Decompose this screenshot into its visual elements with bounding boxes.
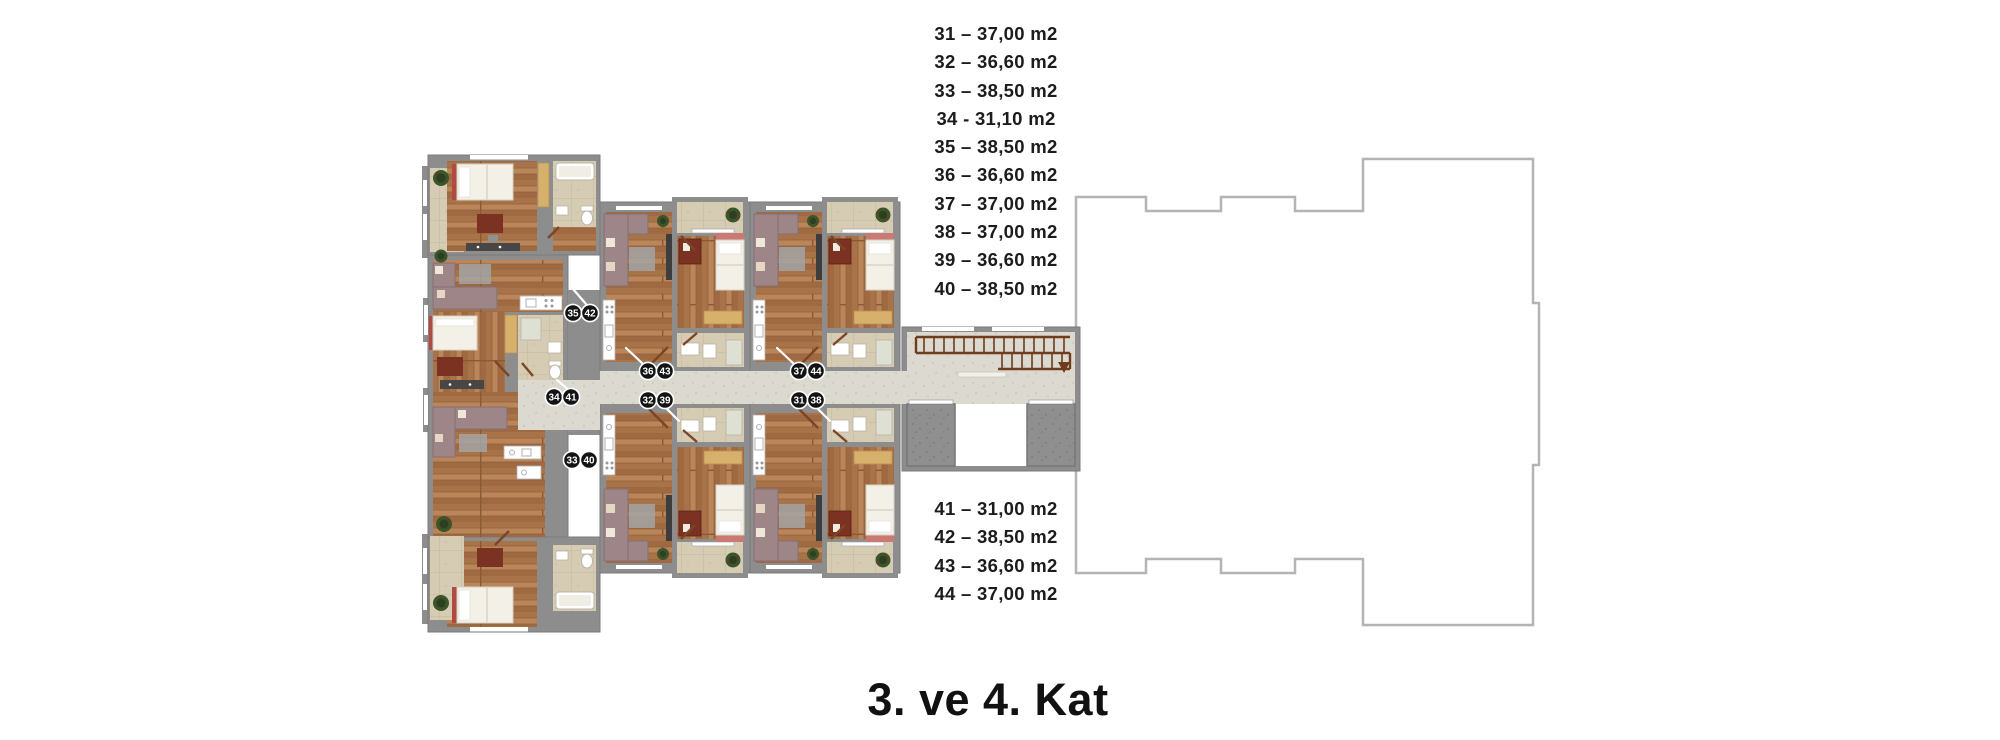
bed [452, 164, 513, 200]
unit-area-list-top: 31 – 37,00 m2 32 – 36,60 m2 33 – 38,50 m… [884, 20, 1108, 303]
tv-console [440, 380, 484, 389]
unit-area-item: 34 - 31,10 m2 [884, 105, 1108, 133]
floorplan-page: 35 42 36 43 37 44 34 41 [0, 0, 2000, 740]
wardrobe [538, 163, 549, 207]
coffee-table [459, 264, 491, 284]
wardrobe [505, 315, 517, 353]
unit-area-item: 36 – 36,60 m2 [884, 161, 1108, 189]
potted-plant [433, 170, 449, 186]
unit-area-item: 38 – 37,00 m2 [884, 218, 1108, 246]
desk [477, 548, 503, 567]
unit-area-item: 33 – 38,50 m2 [884, 77, 1108, 105]
unit-area-item: 42 – 38,50 m2 [884, 523, 1108, 551]
unit-area-item: 40 – 38,50 m2 [884, 275, 1108, 303]
unit-bottom-right [750, 403, 900, 578]
svg-text:38: 38 [810, 396, 822, 407]
potted-plant [436, 516, 452, 532]
bed [452, 587, 513, 623]
unit-area-item: 35 – 38,50 m2 [884, 133, 1108, 161]
potted-plant [433, 595, 449, 611]
unit-top-left [600, 197, 750, 372]
unit-area-item: 43 – 36,60 m2 [884, 552, 1108, 580]
svg-text:39: 39 [659, 396, 671, 407]
building-outline [1076, 159, 1539, 625]
chair [488, 235, 498, 242]
page-title: 3. ve 4. Kat [788, 674, 1188, 726]
potted-plant [435, 250, 448, 263]
svg-text:36: 36 [642, 367, 654, 378]
desk [477, 214, 503, 233]
unit-label-33-40: 33 40 [563, 451, 597, 468]
svg-text:40: 40 [583, 456, 595, 467]
svg-text:42: 42 [584, 309, 596, 320]
unit-top-right [750, 197, 900, 372]
desk [437, 357, 463, 376]
svg-text:44: 44 [810, 367, 822, 378]
unit-area-list-bottom: 41 – 31,00 m2 42 – 38,50 m2 43 – 36,60 m… [884, 495, 1108, 608]
svg-text:34: 34 [548, 393, 560, 404]
hall-floor [553, 227, 596, 251]
window [992, 327, 1044, 331]
svg-text:31: 31 [793, 396, 805, 407]
svg-text:32: 32 [642, 396, 654, 407]
window [922, 327, 974, 331]
unit-area-item: 32 – 36,60 m2 [884, 48, 1108, 76]
unit-area-item: 31 – 37,00 m2 [884, 20, 1108, 48]
unit-bottom-left [600, 403, 750, 578]
coffee-table [459, 434, 487, 452]
svg-text:41: 41 [565, 393, 577, 404]
tv-console [466, 243, 520, 251]
unit-area-item: 39 – 36,60 m2 [884, 246, 1108, 274]
kitchen-counter [520, 296, 562, 310]
bed [429, 316, 477, 350]
stair-landing [958, 372, 1006, 377]
svg-text:43: 43 [659, 367, 671, 378]
svg-text:33: 33 [566, 456, 578, 467]
svg-text:37: 37 [793, 367, 805, 378]
unit-area-item: 44 – 37,00 m2 [884, 580, 1108, 608]
svg-text:35: 35 [567, 309, 579, 320]
railing [1029, 400, 1073, 404]
unit-area-item: 41 – 31,00 m2 [884, 495, 1108, 523]
railing [909, 400, 953, 404]
corridor-vestibule [518, 380, 600, 430]
elevator-shafts [907, 400, 1075, 466]
unit-area-item: 37 – 37,00 m2 [884, 190, 1108, 218]
